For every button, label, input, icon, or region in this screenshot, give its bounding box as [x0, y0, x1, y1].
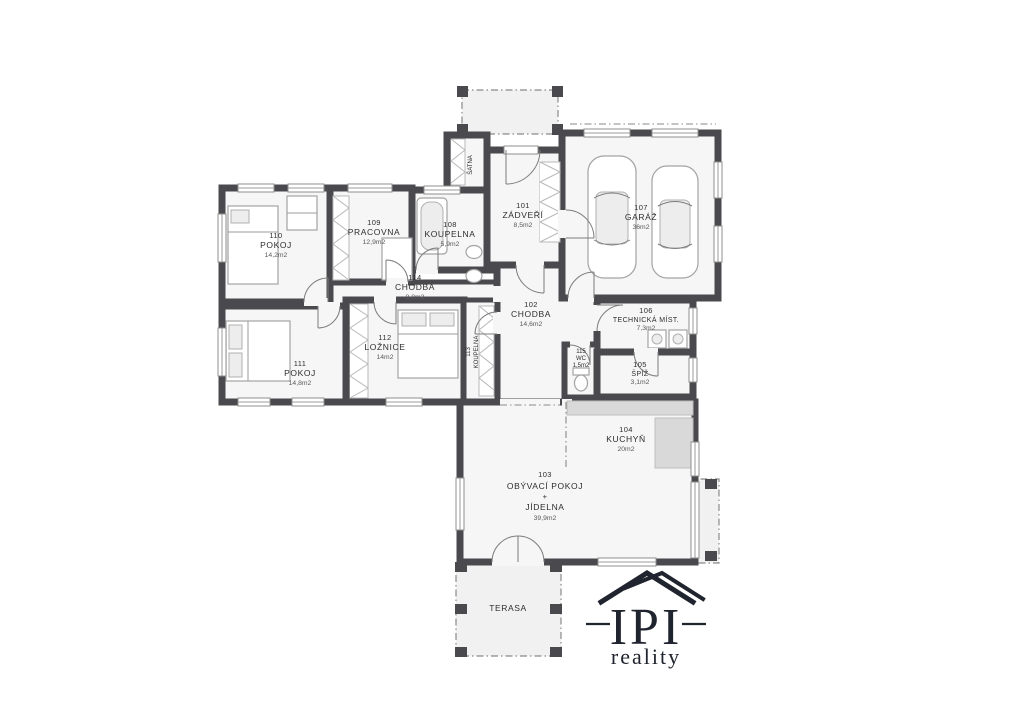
room-name-2: JÍDELNA	[525, 502, 564, 512]
room-number: 114	[408, 273, 421, 282]
room-name: POKOJ	[260, 240, 292, 250]
room-name: KOUPELNA	[474, 336, 480, 369]
floor-plan-page: 110 POKOJ 14,2m2 109 PRACOVNA 12,9m2 108…	[0, 0, 1024, 724]
room-area: 14,6m2	[520, 321, 543, 328]
room-number: 104	[619, 425, 633, 434]
room-area: 36m2	[632, 224, 649, 231]
room-number: 115	[576, 349, 586, 355]
room-number: 105	[633, 360, 647, 369]
ipi-reality-logo: IPI reality	[586, 573, 706, 669]
room-name: WC	[576, 356, 587, 362]
floor-plan: 110 POKOJ 14,2m2 109 PRACOVNA 12,9m2 108…	[0, 0, 1024, 724]
room-area: 8,8m2	[406, 294, 425, 301]
room-area: 14,8m2	[289, 380, 312, 387]
room-number: 111	[294, 359, 307, 368]
label-satna: ŠATNA	[467, 155, 474, 175]
room-name: POKOJ	[284, 368, 316, 378]
room-number: 103	[538, 470, 552, 479]
bed-pokoj-111	[226, 321, 290, 381]
room-area: 1,5m2	[573, 363, 590, 369]
room-name: ŠATNA	[467, 155, 474, 175]
label-terasa: TERASA	[489, 603, 527, 613]
room-area: 7,3m2	[637, 325, 656, 332]
room-name: PRACOVNA	[348, 227, 401, 237]
room-area: 14,2m2	[265, 252, 288, 259]
wc-fixtures	[573, 368, 589, 391]
room-area: 12,9m2	[363, 239, 386, 246]
room-area: 3,1m2	[631, 379, 650, 386]
room-number: 110	[269, 231, 282, 240]
entry-porch	[457, 86, 563, 135]
bed-loznice-112	[398, 310, 458, 378]
room-name: KOUPELNA	[424, 229, 475, 239]
room-area: 39,9m2	[534, 515, 557, 522]
room-number: 109	[367, 218, 381, 227]
room-name: OBÝVACÍ POKOJ	[507, 481, 583, 491]
room-area: 8,5m2	[514, 222, 533, 229]
car-right	[652, 166, 698, 278]
room-area: 14m2	[376, 354, 393, 361]
room-name: KUCHYŇ	[606, 434, 646, 444]
label-spiz-105: 105 ŠPÍŽ 3,1m2	[631, 360, 650, 386]
room-name: LOŽNICE	[364, 342, 405, 352]
room-name: ŠPÍŽ	[631, 369, 648, 378]
room-name: CHODBA	[395, 282, 435, 292]
room-number: 108	[443, 220, 457, 229]
room-area: 5,9m2	[441, 241, 460, 248]
room-name: GARÁŽ	[625, 212, 657, 222]
room-number: 102	[524, 300, 538, 309]
room-number: 107	[634, 203, 648, 212]
room-name: TECHNICKÁ MÍST.	[613, 315, 679, 324]
room-area: 20m2	[617, 446, 634, 453]
room-number: 101	[516, 201, 530, 210]
room-name: CHODBA	[511, 309, 551, 319]
room-number: 112	[378, 333, 391, 342]
room-name: ZÁDVEŘÍ	[502, 210, 543, 220]
room-number: 106	[639, 306, 653, 315]
room-number: 113	[466, 347, 472, 357]
logo-tagline: reality	[611, 644, 681, 669]
room-name-plus: +	[543, 492, 548, 501]
